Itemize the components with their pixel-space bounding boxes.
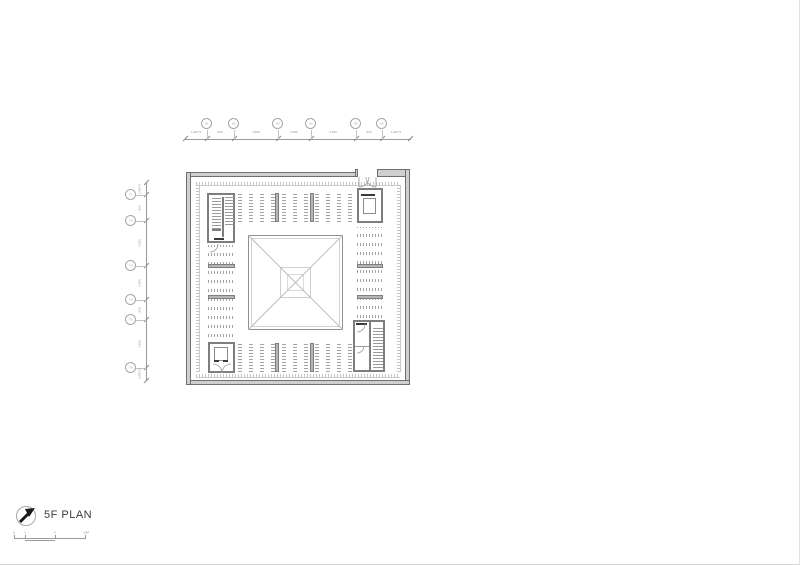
door-swing <box>213 364 222 373</box>
dimension-text: 3,400 <box>290 131 298 134</box>
scale-tick <box>14 535 15 538</box>
door-swing <box>366 177 376 187</box>
scale-bar-line <box>25 540 55 541</box>
dimension-text: 4,520 <box>329 131 337 134</box>
dimension-text: 920 <box>139 307 142 312</box>
grid-bubble: X5 <box>350 118 361 129</box>
scale-label: 0 <box>13 532 15 535</box>
grid-bubble: Y4 <box>125 294 136 305</box>
grid-leader <box>136 266 146 267</box>
grid-leader <box>136 300 146 301</box>
grid-bubble: Y6 <box>125 362 136 373</box>
door-swing <box>210 244 218 252</box>
dimension-text: 1,087.5 <box>391 131 401 134</box>
dimension-text: 920 <box>217 131 222 134</box>
scale-tick <box>85 535 86 538</box>
grid-leader <box>136 195 146 196</box>
scale-tick <box>55 535 56 538</box>
dim-tick <box>144 378 150 384</box>
grid-leader <box>136 320 146 321</box>
grid-leader <box>356 130 357 139</box>
grid-bubble: Y3 <box>125 260 136 271</box>
dimension-line <box>185 139 411 140</box>
grid-bubble: X2 <box>228 118 239 129</box>
page-title: 5F PLAN <box>44 509 92 521</box>
dimension-text: 920 <box>366 131 371 134</box>
floor-plan <box>186 172 410 385</box>
grid-bubble: Y5 <box>125 314 136 325</box>
scale-label: 5 <box>54 532 56 535</box>
dimension-text: 4,520 <box>252 131 260 134</box>
door-swing <box>357 346 364 353</box>
grid-bubble: Y1 <box>125 189 136 200</box>
grid-leader <box>278 130 279 139</box>
dimension-text: 3,400 <box>139 279 142 287</box>
scale-bar-line <box>14 538 86 539</box>
dimension-text: 1,087.5 <box>191 131 201 134</box>
plan-linework <box>186 172 410 385</box>
scale-tick <box>25 535 26 538</box>
door-swing <box>222 364 231 373</box>
dimension-text: 920 <box>139 205 142 210</box>
scale-label: 10M <box>83 532 89 535</box>
dimension-line <box>146 183 147 381</box>
grid-bubble: X1 <box>201 118 212 129</box>
grid-bubble: X6 <box>376 118 387 129</box>
door-swing <box>357 324 365 332</box>
grid-bubble: X4 <box>305 118 316 129</box>
grid-bubble: Y2 <box>125 215 136 226</box>
grid-leader <box>234 130 235 139</box>
grid-leader <box>207 130 208 139</box>
grid-leader <box>136 221 146 222</box>
dimension-text: 4,520 <box>139 239 142 247</box>
dimension-text: 1,087.5 <box>139 369 142 379</box>
dim-tick <box>408 136 414 142</box>
dimension-text: 4,520 <box>139 340 142 348</box>
drawing-sheet: X1 X2 X3 X4 X5 X6 1,087.5 920 4,520 3,40… <box>0 0 800 565</box>
dimension-text: 1,087.5 <box>139 184 142 194</box>
north-arrow-icon <box>15 504 39 528</box>
grid-leader <box>311 130 312 139</box>
grid-bubble: X3 <box>272 118 283 129</box>
scale-label: 1 <box>24 532 26 535</box>
grid-leader <box>382 130 383 139</box>
